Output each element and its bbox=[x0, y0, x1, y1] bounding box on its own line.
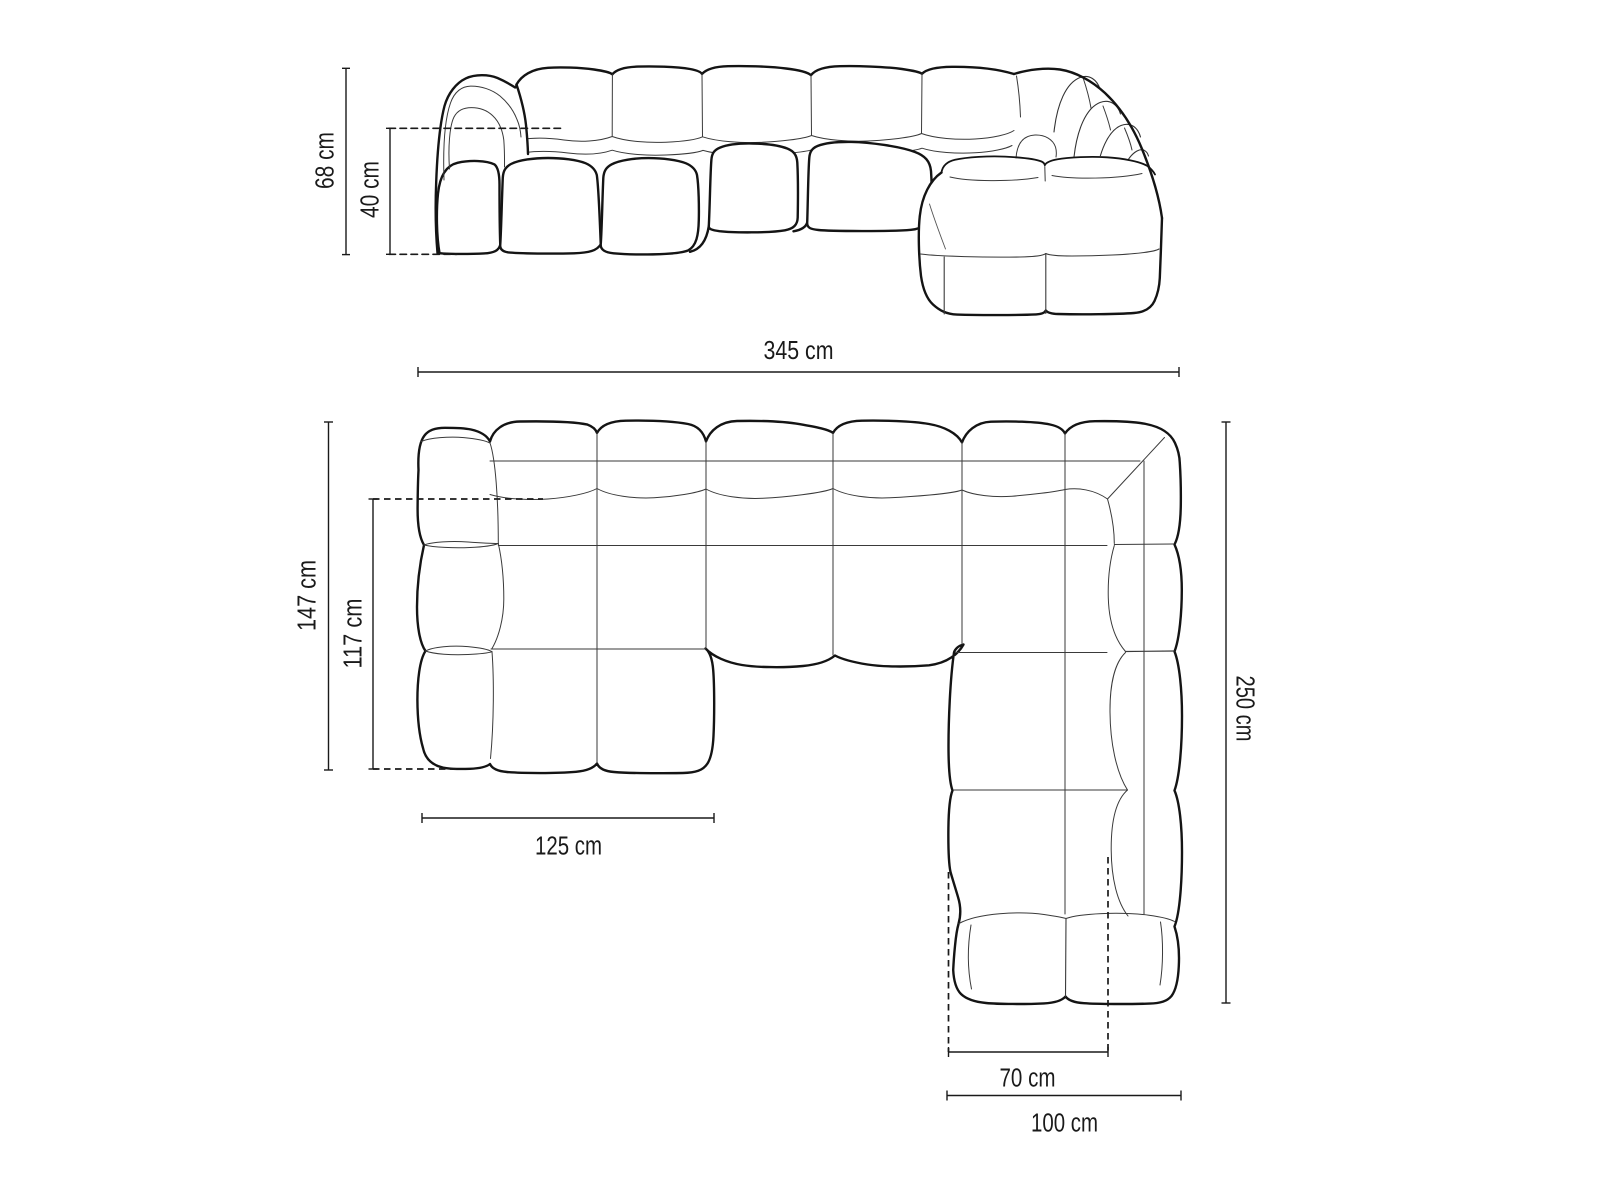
svg-text:117 cm: 117 cm bbox=[340, 599, 368, 669]
svg-text:345 cm: 345 cm bbox=[764, 335, 834, 365]
svg-text:68 cm: 68 cm bbox=[312, 132, 340, 189]
svg-text:40 cm: 40 cm bbox=[357, 161, 385, 218]
svg-text:70 cm: 70 cm bbox=[1000, 1065, 1056, 1093]
svg-text:125 cm: 125 cm bbox=[535, 833, 602, 861]
svg-text:147 cm: 147 cm bbox=[294, 560, 322, 631]
svg-text:100 cm: 100 cm bbox=[1031, 1110, 1098, 1138]
svg-text:250 cm: 250 cm bbox=[1231, 676, 1259, 742]
